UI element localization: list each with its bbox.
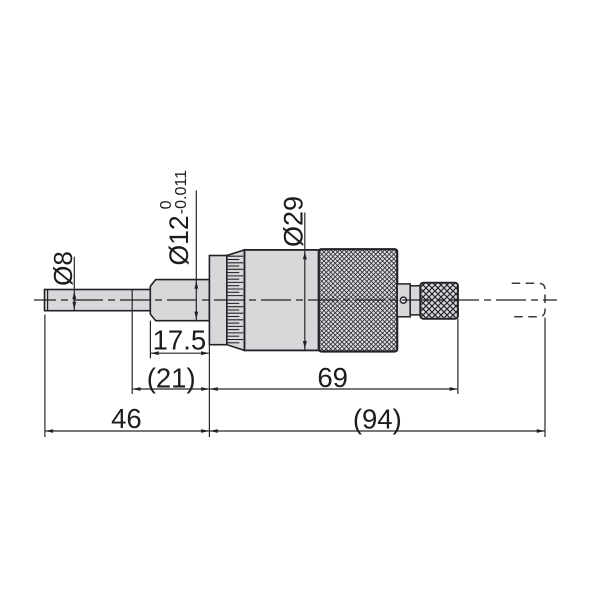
svg-text:-0.011: -0.011 bbox=[173, 170, 190, 214]
svg-text:(21): (21) bbox=[147, 363, 196, 394]
svg-text:17.5: 17.5 bbox=[153, 325, 207, 356]
svg-text:69: 69 bbox=[317, 362, 348, 393]
svg-text:Ø29: Ø29 bbox=[279, 196, 309, 247]
svg-text:Ø12: Ø12 bbox=[164, 215, 194, 265]
svg-text:46: 46 bbox=[111, 403, 142, 434]
svg-text:(94): (94) bbox=[353, 404, 402, 435]
svg-text:Ø8: Ø8 bbox=[48, 251, 78, 286]
